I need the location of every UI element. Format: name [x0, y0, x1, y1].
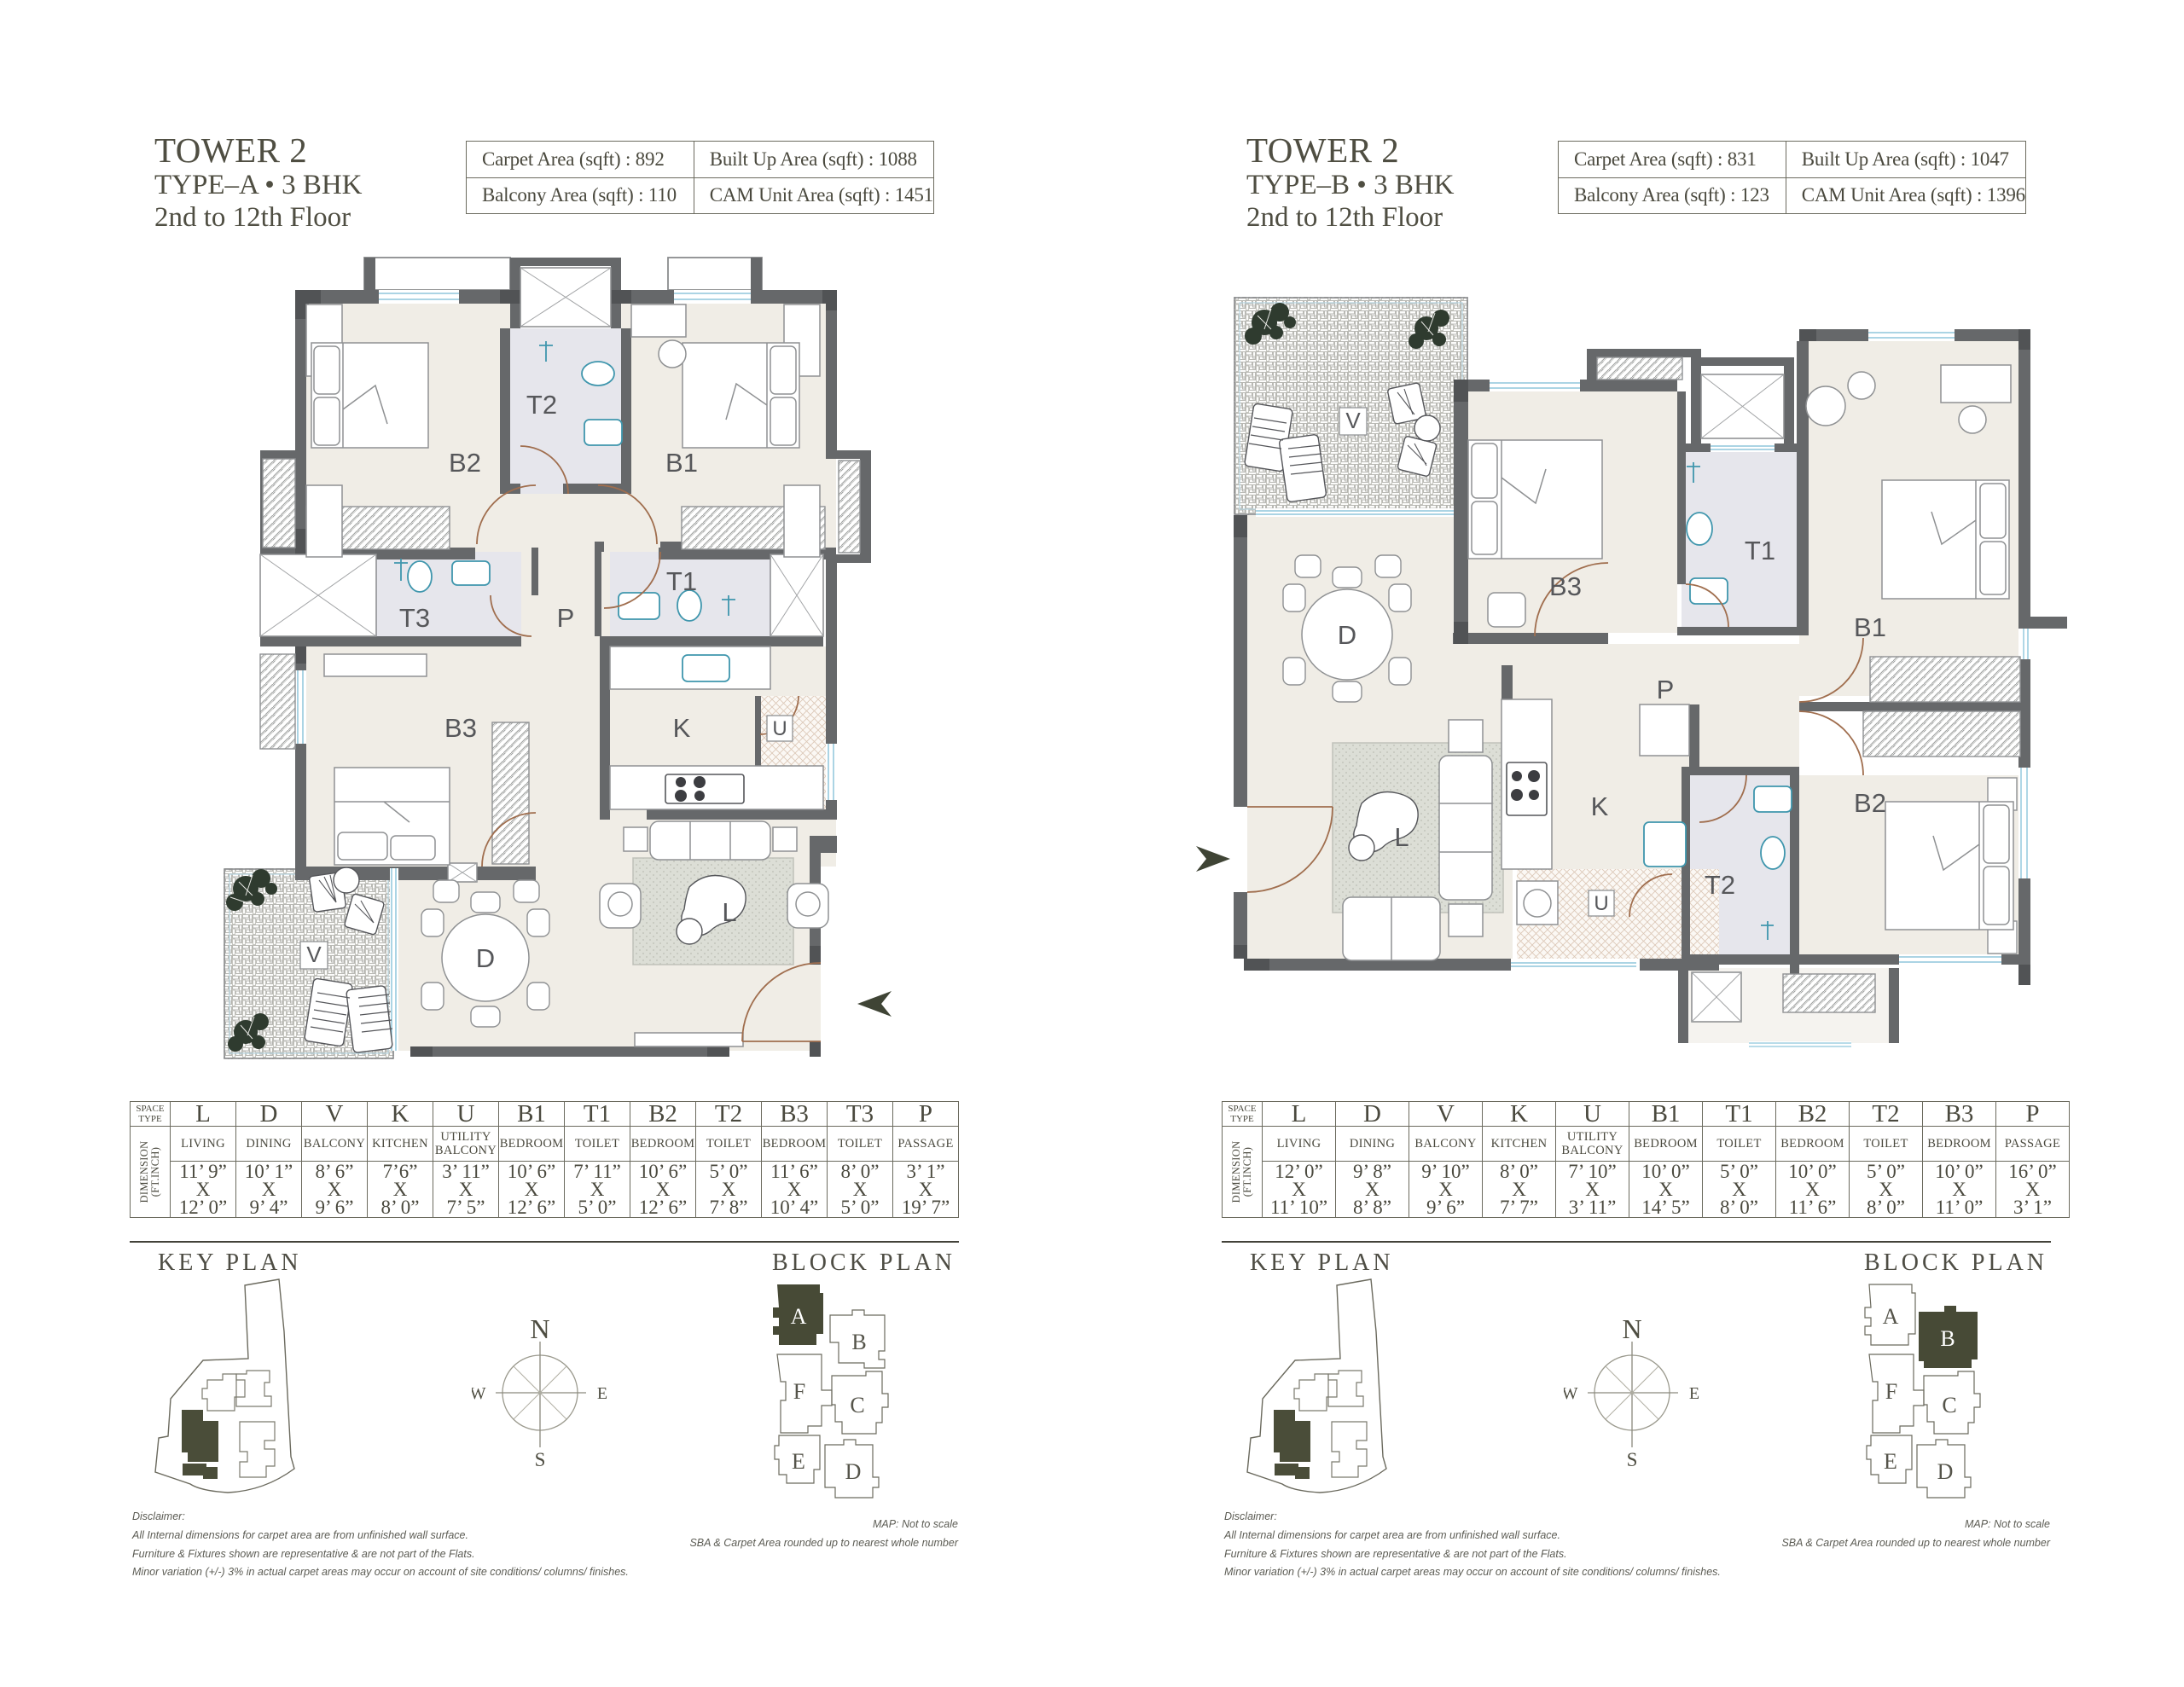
svg-text:N: N: [1622, 1313, 1641, 1344]
svg-text:T3: T3: [399, 603, 430, 633]
svg-text:E: E: [792, 1449, 805, 1474]
svg-text:U: U: [772, 717, 787, 740]
svg-text:A: A: [791, 1304, 807, 1329]
svg-text:B3: B3: [444, 713, 477, 743]
svg-text:N: N: [530, 1313, 549, 1344]
svg-text:U: U: [1594, 892, 1608, 915]
svg-text:B2: B2: [449, 448, 481, 478]
svg-text:D: D: [1937, 1459, 1954, 1484]
svg-text:T1: T1: [666, 566, 697, 596]
svg-text:B2: B2: [1854, 788, 1886, 818]
svg-text:T1: T1: [1745, 536, 1775, 565]
svg-text:B1: B1: [665, 448, 698, 478]
svg-text:B1: B1: [1854, 612, 1886, 642]
svg-text:W: W: [472, 1384, 486, 1403]
svg-text:V: V: [306, 942, 322, 967]
svg-text:E: E: [597, 1384, 607, 1403]
svg-text:K: K: [1591, 791, 1609, 821]
svg-text:T2: T2: [526, 390, 557, 420]
svg-text:T2: T2: [1705, 870, 1735, 900]
svg-text:F: F: [793, 1379, 805, 1404]
svg-text:S: S: [1627, 1449, 1638, 1470]
svg-text:L: L: [1394, 822, 1409, 852]
svg-text:E: E: [1884, 1449, 1897, 1474]
svg-text:D: D: [476, 943, 495, 973]
svg-text:E: E: [1689, 1384, 1699, 1403]
svg-text:F: F: [1885, 1379, 1897, 1404]
svg-text:C: C: [1942, 1393, 1956, 1417]
svg-text:D: D: [1338, 620, 1356, 650]
svg-text:W: W: [1564, 1384, 1578, 1403]
svg-text:B: B: [1940, 1326, 1955, 1351]
svg-text:B3: B3: [1549, 571, 1582, 601]
svg-text:B: B: [851, 1330, 866, 1354]
svg-text:P: P: [1657, 675, 1675, 704]
svg-text:S: S: [535, 1449, 546, 1470]
svg-text:V: V: [1345, 408, 1361, 433]
svg-text:L: L: [722, 897, 736, 927]
svg-text:P: P: [557, 603, 575, 633]
svg-text:D: D: [845, 1459, 862, 1484]
svg-text:K: K: [673, 713, 691, 743]
svg-text:A: A: [1883, 1304, 1899, 1329]
svg-text:C: C: [850, 1393, 864, 1417]
